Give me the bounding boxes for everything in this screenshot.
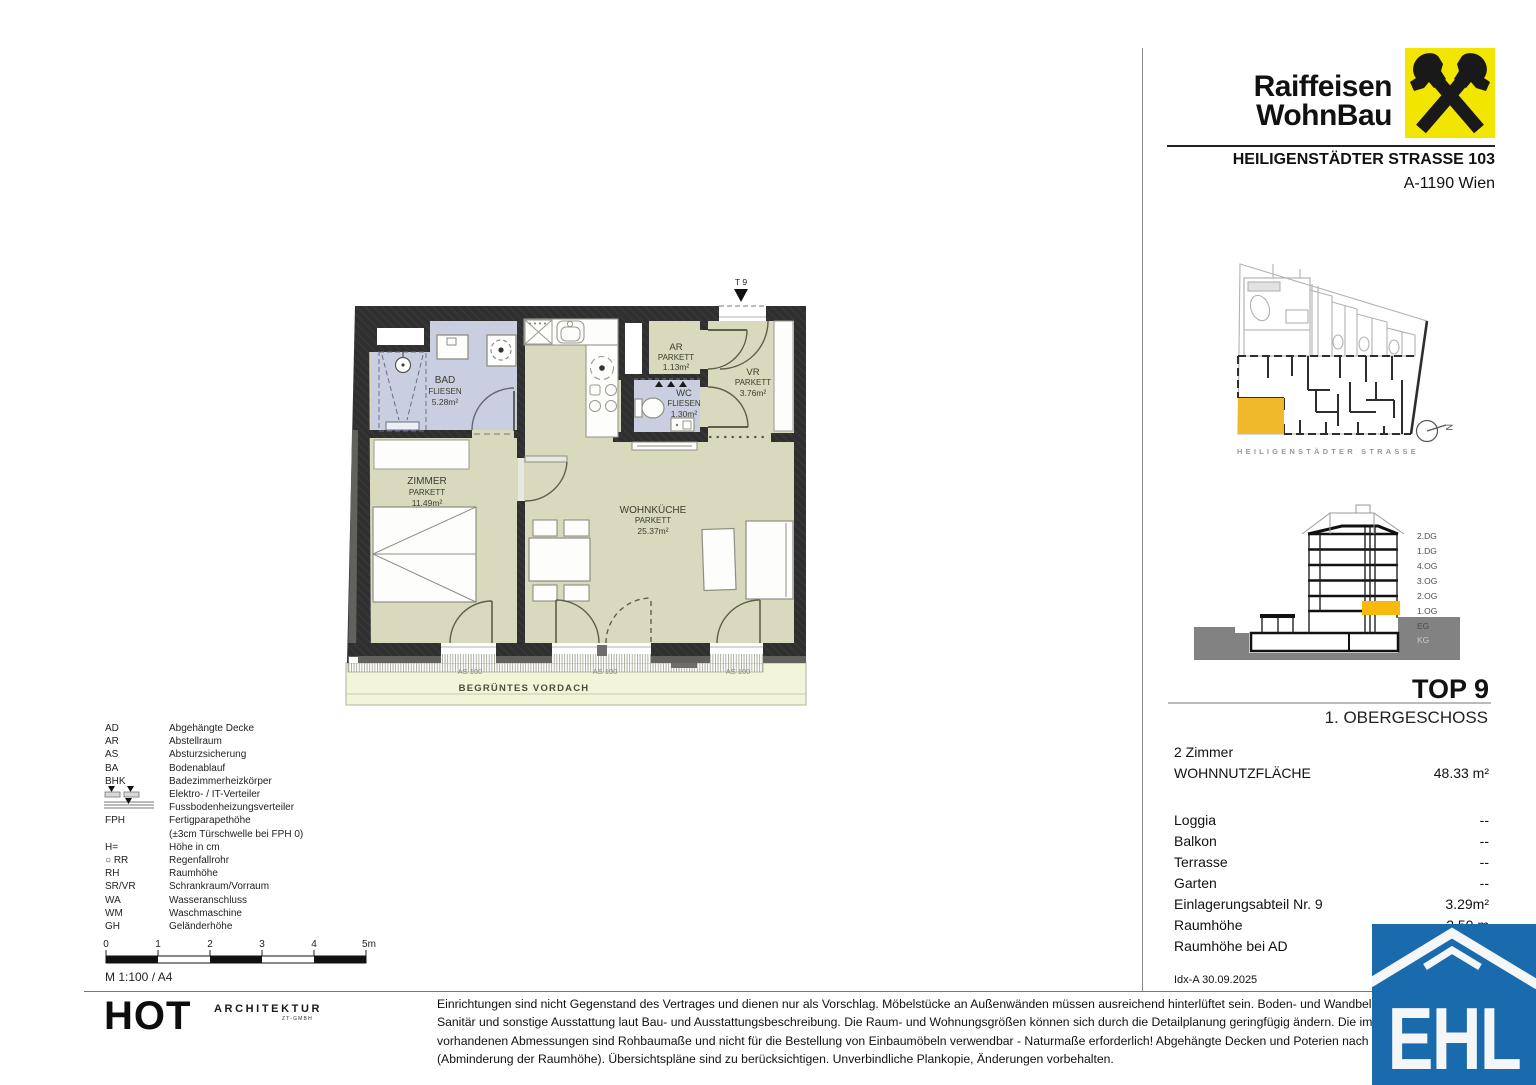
svg-text:BAD: BAD <box>435 375 456 386</box>
svg-text:ZIMMER: ZIMMER <box>407 476 446 487</box>
svg-text:3.76m²: 3.76m² <box>740 388 767 398</box>
svg-text:3: 3 <box>259 939 265 950</box>
svg-text:FLIESEN: FLIESEN <box>667 399 701 408</box>
svg-text:1.13m²: 1.13m² <box>663 362 690 372</box>
svg-text:HEILIGENSTÄDTER STRASSE: HEILIGENSTÄDTER STRASSE <box>1237 447 1419 456</box>
svg-text:5m: 5m <box>362 939 376 950</box>
svg-text:FLIESEN: FLIESEN <box>428 387 462 396</box>
svg-text:1.30m²: 1.30m² <box>671 409 698 419</box>
svg-text:BEGRÜNTES VORDACH: BEGRÜNTES VORDACH <box>459 683 590 694</box>
svg-text:1.DG: 1.DG <box>1417 546 1437 556</box>
svg-text:AR: AR <box>669 342 682 353</box>
svg-text:KG: KG <box>1417 635 1429 645</box>
svg-text:AS 100: AS 100 <box>593 667 618 676</box>
svg-text:3.OG: 3.OG <box>1417 576 1437 586</box>
svg-text:PARKETT: PARKETT <box>658 353 694 362</box>
svg-text:PARKETT: PARKETT <box>409 488 445 497</box>
svg-text:EG: EG <box>1417 621 1429 631</box>
svg-text:2.DG: 2.DG <box>1417 531 1437 541</box>
svg-text:WC: WC <box>676 388 692 399</box>
svg-text:T 9: T 9 <box>735 277 747 287</box>
svg-text:4: 4 <box>311 939 317 950</box>
svg-text:0: 0 <box>103 939 109 950</box>
svg-text:WOHNKÜCHE: WOHNKÜCHE <box>620 504 687 516</box>
svg-text:1.OG: 1.OG <box>1417 606 1437 616</box>
svg-text:VR: VR <box>746 367 759 378</box>
svg-text:2: 2 <box>207 939 213 950</box>
svg-text:1: 1 <box>155 939 161 950</box>
svg-text:N: N <box>1444 424 1454 431</box>
svg-text:EHL: EHL <box>1388 990 1521 1085</box>
svg-text:4.OG: 4.OG <box>1417 561 1437 571</box>
svg-text:AS 100: AS 100 <box>726 667 751 676</box>
svg-text:AS 100: AS 100 <box>458 667 483 676</box>
svg-text:PARKETT: PARKETT <box>635 516 671 525</box>
svg-text:PARKETT: PARKETT <box>735 378 771 387</box>
svg-text:25.37m²: 25.37m² <box>637 526 668 536</box>
svg-text:5.28m²: 5.28m² <box>432 397 459 407</box>
svg-text:2.OG: 2.OG <box>1417 591 1437 601</box>
